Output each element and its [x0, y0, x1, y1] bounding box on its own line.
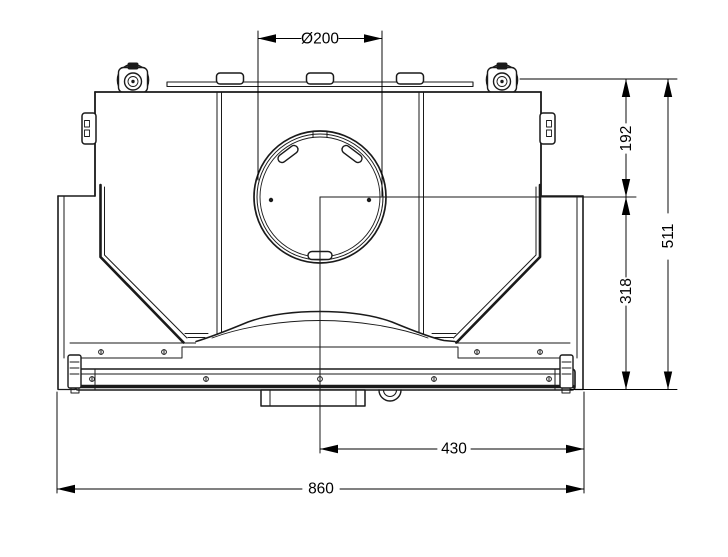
mounting-bracket-left [82, 113, 96, 144]
front-rail [75, 369, 575, 390]
hinge-bracket-right [560, 355, 573, 393]
castor-wheel-left [118, 63, 149, 96]
top-tab-left [217, 73, 244, 84]
top-panel [167, 73, 473, 87]
dim-label-192: 192 [618, 126, 635, 152]
top-tab-center [307, 73, 334, 84]
castor-wheel-right [487, 63, 518, 96]
dim-label-318: 318 [618, 278, 635, 304]
top-tab-right [397, 73, 424, 84]
technical-drawing-page: Ø200 192 511 318 430 860 [0, 0, 728, 557]
hinge-bracket-left [68, 355, 81, 393]
hood-top-view-drawing: Ø200 192 511 318 430 860 [0, 0, 728, 557]
dim-label-860: 860 [308, 481, 334, 498]
junction-box [261, 390, 365, 406]
cable-loop [379, 390, 401, 401]
rivet-dot-left [269, 198, 273, 202]
dim-label-511: 511 [660, 224, 677, 249]
dim-label-430: 430 [441, 441, 467, 458]
rivet-dot-right [367, 198, 371, 202]
dim-label-duct-diameter: Ø200 [301, 31, 339, 48]
castor-cap-icon [128, 63, 139, 70]
body-face [95, 92, 541, 338]
mounting-bracket-right [540, 113, 555, 144]
